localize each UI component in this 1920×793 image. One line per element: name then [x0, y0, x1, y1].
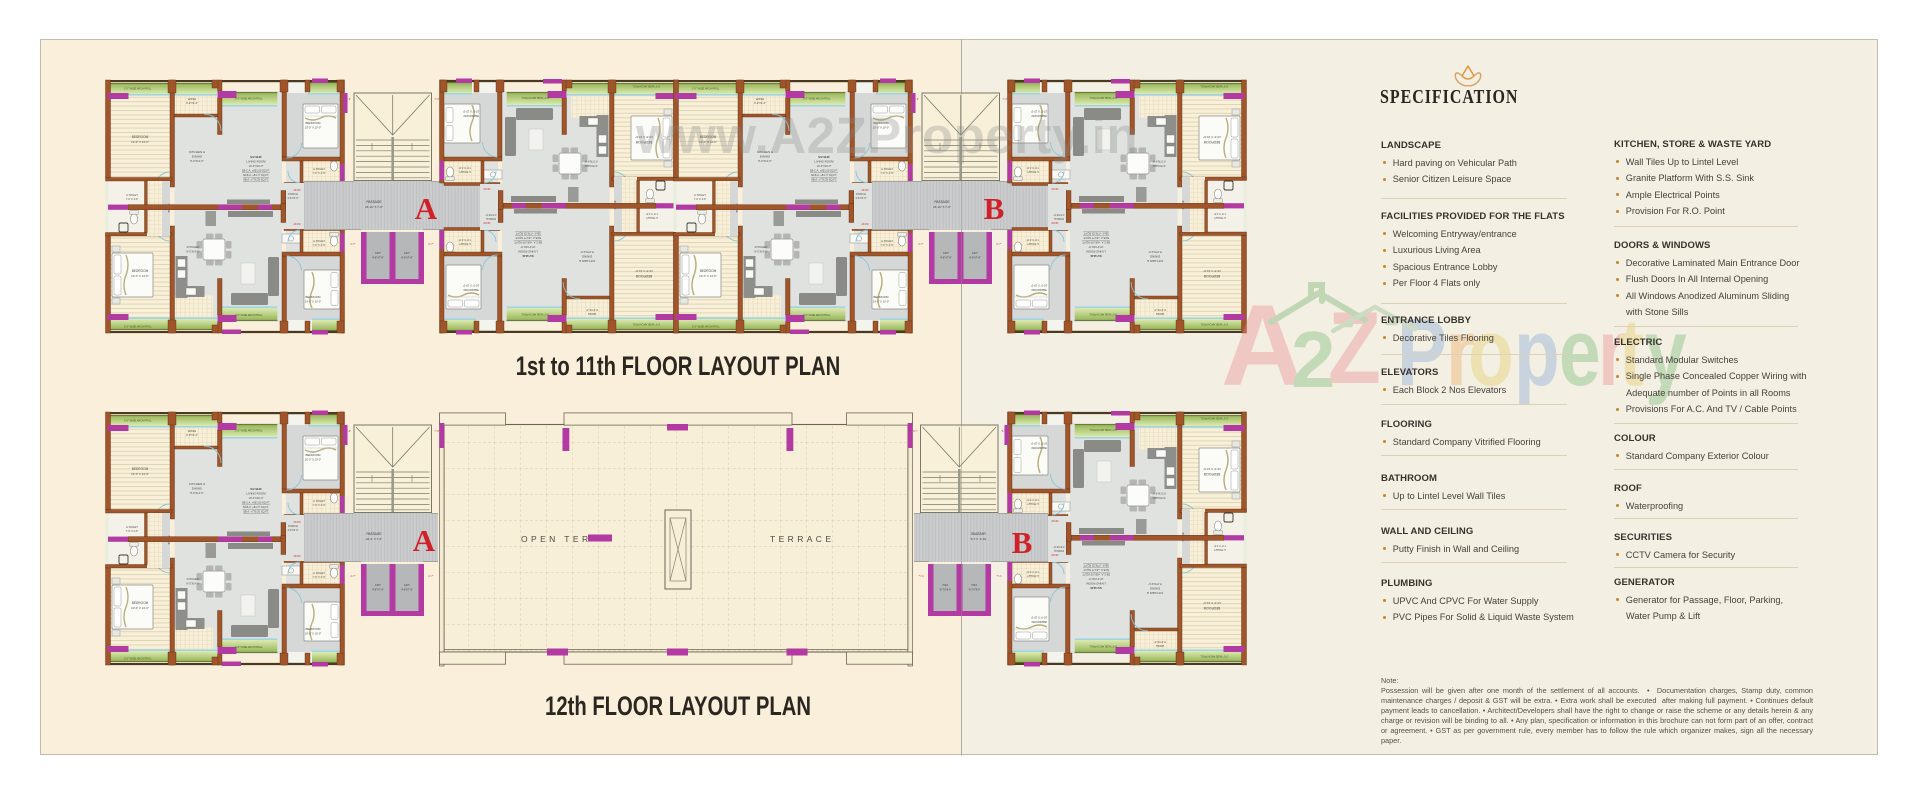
svg-text:TERRACE: TERRACE: [770, 534, 834, 544]
svg-text:A: A: [413, 523, 436, 558]
svg-text:B: B: [1012, 525, 1033, 560]
svg-text:A: A: [415, 191, 438, 226]
svg-text:e: e: [1559, 299, 1601, 406]
svg-text:p: p: [1514, 299, 1560, 406]
svg-text:B: B: [984, 191, 1005, 226]
svg-text:OPEN TER: OPEN TER: [521, 534, 592, 544]
